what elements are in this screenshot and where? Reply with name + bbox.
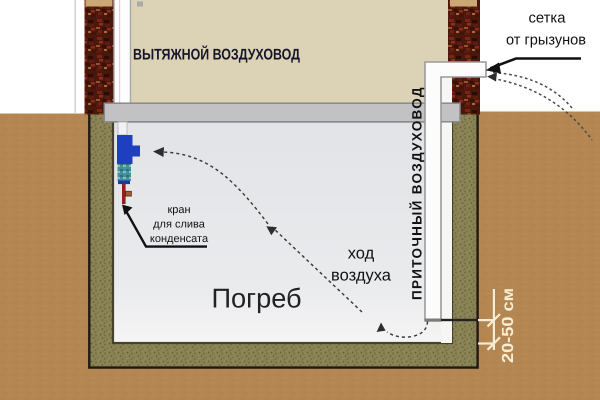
- svg-text:конденсата: конденсата: [150, 233, 209, 245]
- svg-text:кран: кран: [167, 204, 190, 216]
- svg-text:от грызунов: от грызунов: [506, 33, 586, 49]
- svg-text:для слива: для слива: [153, 219, 206, 231]
- svg-text:воздуха: воздуха: [331, 267, 392, 285]
- svg-text:ПРИТОЧНЫЙ ВОЗДУХОВОД: ПРИТОЧНЫЙ ВОЗДУХОВОД: [409, 86, 425, 300]
- svg-text:сетка: сетка: [529, 11, 567, 27]
- svg-text:20-50 см: 20-50 см: [500, 288, 517, 363]
- svg-text:ход: ход: [348, 245, 375, 263]
- svg-text:ВЫТЯЖНОЙ ВОЗДУХОВОД: ВЫТЯЖНОЙ ВОЗДУХОВОД: [133, 45, 300, 64]
- svg-text:Погреб: Погреб: [212, 283, 302, 314]
